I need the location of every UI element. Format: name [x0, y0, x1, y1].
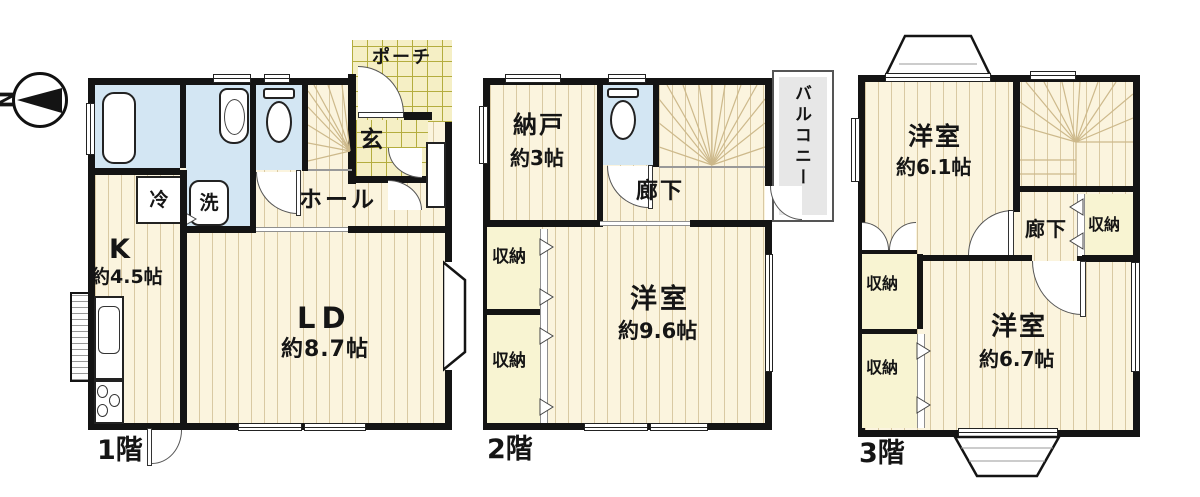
closet-label: 収納 — [492, 249, 526, 266]
toilet-bowl — [610, 100, 636, 140]
bay-window — [948, 432, 1066, 480]
closet-label: 収納 — [492, 353, 526, 370]
western-room-size-label: 約9.6帖 — [618, 321, 697, 342]
wall-segment — [404, 112, 432, 120]
wall-segment — [1017, 186, 1140, 192]
storage-room-label: 納戸 — [513, 113, 565, 137]
burner-icon — [97, 404, 108, 417]
toilet-bowl — [266, 101, 292, 143]
window — [264, 74, 290, 83]
wall-segment — [690, 220, 772, 227]
burner-icon — [109, 394, 120, 407]
back-door-swing — [152, 430, 182, 464]
closet — [862, 334, 917, 428]
window — [765, 254, 773, 372]
sliding-door-arrow-icon — [916, 342, 931, 360]
closet-label: 収納 — [866, 360, 898, 376]
sliding-door-arrow-icon — [1069, 198, 1084, 216]
kitchen-sink — [98, 306, 120, 354]
storage-room-size-label: 約3帖 — [510, 148, 564, 168]
western-room-a-size-label: 約6.1帖 — [896, 157, 971, 177]
sliding-door-arrow-icon — [539, 398, 554, 416]
stairs-edge — [659, 166, 765, 168]
floor3-label: 3階 — [859, 440, 905, 467]
window — [86, 103, 95, 155]
floor2-label: 2階 — [487, 436, 533, 463]
sliding-door — [540, 229, 548, 423]
sliding-door-arrow-icon — [1069, 232, 1084, 250]
closet-label: 収納 — [866, 276, 898, 292]
corridor-label: 廊下 — [636, 181, 684, 203]
toilet-tank — [263, 88, 295, 99]
room-door-leaf — [1080, 261, 1086, 317]
window — [885, 73, 991, 82]
window — [851, 118, 860, 182]
kitchen-size-label: 約4.5帖 — [91, 268, 163, 287]
refrigerator-box: 冷 — [136, 176, 182, 224]
ld-label: LD — [297, 304, 352, 333]
closet — [487, 227, 540, 309]
corridor-label: 廊下 — [1025, 219, 1067, 239]
wall-segment — [917, 254, 923, 329]
compass-needle-icon — [16, 87, 64, 114]
fridge-label: 冷 — [149, 191, 168, 210]
burner-icon — [97, 385, 108, 398]
kitchen-label: K — [109, 236, 130, 263]
stairs — [659, 85, 765, 167]
wall-segment — [348, 226, 452, 233]
floorplan-canvas: N ポーチ 玄 洗 — [0, 0, 1200, 497]
sliding-door-arrow-icon — [916, 396, 931, 414]
window — [213, 74, 251, 83]
sliding-door-arrow-icon — [539, 238, 554, 256]
shoe-cabinet — [426, 142, 446, 208]
stairs — [1020, 82, 1133, 186]
wall-segment — [186, 226, 256, 233]
window — [304, 423, 366, 431]
window — [608, 74, 646, 83]
floor1-label: 1階 — [97, 437, 143, 464]
window — [505, 74, 561, 83]
western-room-b-label: 洋室 — [991, 314, 1047, 340]
window — [650, 423, 708, 431]
wall-segment — [487, 220, 600, 227]
window — [584, 423, 648, 431]
ld-size-label: 約8.7帖 — [281, 339, 369, 361]
bathtub — [102, 92, 136, 164]
washer-label: 洗 — [199, 194, 218, 213]
wall-segment — [180, 170, 187, 423]
stairs — [308, 85, 352, 171]
wall-segment — [914, 255, 1032, 261]
ld-bay-window — [443, 256, 469, 376]
window — [1131, 262, 1140, 372]
porch-label: ポーチ — [372, 49, 432, 67]
entrance-door-leaf — [358, 112, 404, 118]
compass-north-label: N — [0, 87, 18, 113]
wall-segment — [88, 168, 180, 175]
sliding-door — [256, 227, 348, 232]
stairs-edge — [308, 169, 352, 171]
window — [1030, 71, 1076, 80]
hall-label: ホール — [299, 189, 377, 212]
washbasin-bowl — [224, 99, 245, 135]
window — [479, 106, 488, 164]
western-room-b-size-label: 約6.7帖 — [979, 349, 1054, 369]
toilet-tank — [607, 88, 639, 98]
wall-segment — [1013, 82, 1020, 212]
window — [238, 423, 302, 431]
entrance-label: 玄 — [360, 129, 383, 152]
sliding-door — [600, 221, 690, 226]
western-room-a-label: 洋室 — [908, 124, 962, 149]
room-door-leaf — [1008, 210, 1014, 256]
sliding-door-arrow-icon — [539, 327, 554, 345]
closet-label: 収納 — [1088, 217, 1120, 233]
sliding-door-arrow-icon — [539, 288, 554, 306]
kitchen-bay-window — [70, 292, 90, 382]
wall-segment — [1082, 255, 1140, 261]
western-room-label: 洋室 — [630, 286, 690, 313]
